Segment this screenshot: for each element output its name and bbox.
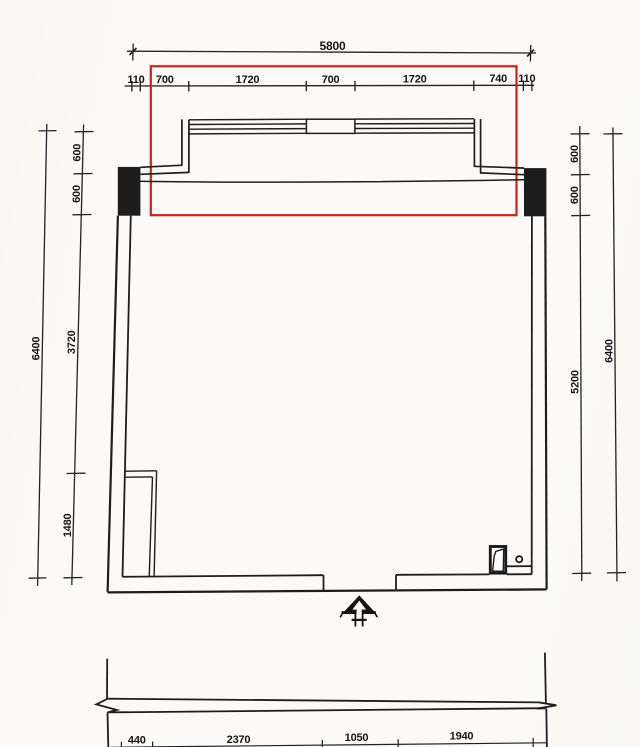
svg-text:1480: 1480 [62, 513, 74, 537]
svg-text:5200: 5200 [569, 370, 581, 394]
svg-text:110: 110 [518, 73, 535, 85]
svg-text:600: 600 [71, 185, 83, 203]
svg-text:600: 600 [569, 186, 581, 204]
svg-text:440: 440 [128, 735, 146, 747]
svg-text:6400: 6400 [30, 337, 42, 361]
svg-text:740: 740 [489, 73, 507, 85]
svg-text:2370: 2370 [227, 734, 251, 746]
svg-text:600: 600 [72, 144, 84, 162]
svg-text:1940: 1940 [450, 730, 474, 742]
svg-text:600: 600 [569, 145, 581, 163]
svg-text:3720: 3720 [66, 330, 78, 354]
svg-text:1050: 1050 [345, 732, 369, 744]
svg-text:6400: 6400 [604, 339, 616, 363]
svg-text:700: 700 [322, 74, 340, 86]
svg-text:1720: 1720 [236, 74, 260, 86]
svg-text:5800: 5800 [320, 39, 346, 53]
svg-text:1720: 1720 [403, 73, 427, 85]
svg-text:110: 110 [127, 74, 144, 86]
svg-text:700: 700 [156, 74, 174, 86]
